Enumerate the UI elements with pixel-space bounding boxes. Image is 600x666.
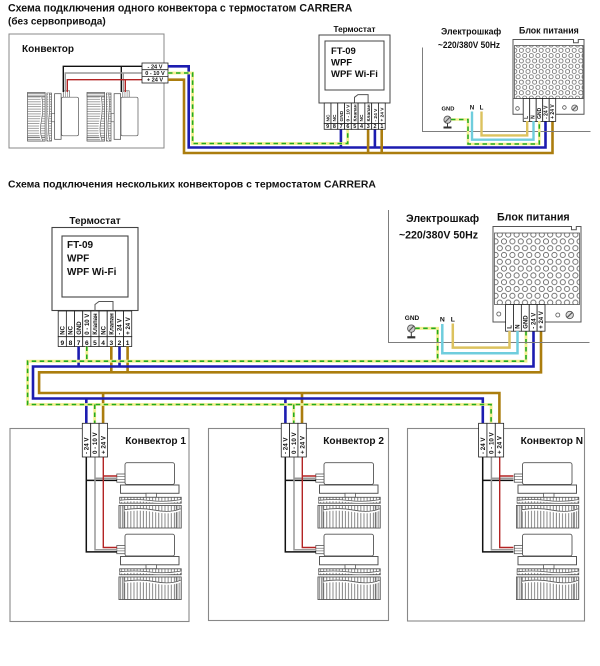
svg-text:FT-09: FT-09 bbox=[67, 240, 94, 251]
svg-text:1: 1 bbox=[380, 124, 383, 130]
svg-text:N: N bbox=[440, 317, 445, 324]
svg-text:+ 24 V: + 24 V bbox=[539, 311, 545, 329]
svg-text:GND: GND bbox=[523, 315, 529, 329]
svg-text:4: 4 bbox=[360, 124, 363, 130]
svg-text:Конвектор 2: Конвектор 2 bbox=[323, 436, 384, 447]
svg-text:5: 5 bbox=[93, 340, 97, 347]
svg-text:Конвектор N: Конвектор N bbox=[521, 436, 583, 447]
svg-text:- 24 V: - 24 V bbox=[544, 105, 550, 119]
svg-text:+ 24 V: + 24 V bbox=[380, 107, 386, 122]
svg-text:Блок питания: Блок питания bbox=[519, 26, 579, 36]
svg-text:7: 7 bbox=[340, 124, 343, 130]
svg-text:Конвектор: Конвектор bbox=[22, 44, 74, 55]
svg-text:6: 6 bbox=[346, 124, 349, 130]
svg-text:Блок питания: Блок питания bbox=[497, 212, 570, 224]
svg-text:Клапан: Клапан bbox=[366, 104, 372, 121]
svg-text:Схема подключения одного конве: Схема подключения одного конвектора с те… bbox=[8, 3, 353, 15]
svg-text:8: 8 bbox=[333, 124, 336, 130]
svg-text:GND: GND bbox=[339, 110, 345, 121]
svg-text:Клапан: Клапан bbox=[93, 313, 99, 335]
svg-text:L: L bbox=[508, 325, 514, 329]
svg-text:FT-09: FT-09 bbox=[331, 46, 356, 57]
svg-text:6: 6 bbox=[85, 340, 89, 347]
svg-text:0 - 10 V: 0 - 10 V bbox=[488, 431, 495, 454]
svg-text:NC: NC bbox=[60, 325, 66, 334]
svg-text:1: 1 bbox=[126, 340, 130, 347]
svg-text:+ 24 V: + 24 V bbox=[299, 435, 306, 454]
svg-text:WPF Wi-Fi: WPF Wi-Fi bbox=[67, 267, 117, 278]
svg-text:0 - 10 V: 0 - 10 V bbox=[145, 71, 165, 77]
svg-text:L: L bbox=[524, 116, 530, 119]
svg-text:5: 5 bbox=[353, 124, 356, 130]
svg-text:+ 24 V: + 24 V bbox=[147, 78, 164, 84]
svg-text:~220/380V 50Hz: ~220/380V 50Hz bbox=[399, 230, 478, 242]
svg-text:(без сервопривода): (без сервопривода) bbox=[8, 16, 106, 28]
svg-text:9: 9 bbox=[326, 124, 329, 130]
svg-text:Электрошкаф: Электрошкаф bbox=[406, 213, 479, 225]
svg-text:8: 8 bbox=[69, 340, 73, 347]
svg-text:- 24 V: - 24 V bbox=[148, 64, 163, 70]
svg-text:Термостат: Термостат bbox=[333, 25, 375, 34]
svg-text:N: N bbox=[516, 324, 522, 328]
svg-text:GND: GND bbox=[77, 321, 83, 335]
svg-text:GND: GND bbox=[537, 107, 543, 119]
svg-text:NC: NC bbox=[359, 114, 365, 121]
svg-text:NC: NC bbox=[69, 325, 75, 334]
svg-text:NC: NC bbox=[101, 325, 107, 334]
svg-text:Клапан: Клапан bbox=[109, 313, 115, 335]
svg-text:L: L bbox=[451, 317, 455, 324]
svg-text:WPF Wi-Fi: WPF Wi-Fi bbox=[331, 69, 378, 80]
svg-text:- 24 V: - 24 V bbox=[283, 437, 290, 454]
svg-text:3: 3 bbox=[367, 124, 370, 130]
svg-text:4: 4 bbox=[101, 340, 105, 347]
svg-text:GND: GND bbox=[442, 107, 455, 113]
svg-text:Конвектор 1: Конвектор 1 bbox=[125, 436, 186, 447]
svg-text:9: 9 bbox=[60, 340, 64, 347]
svg-text:WPF: WPF bbox=[67, 254, 89, 265]
svg-text:7: 7 bbox=[77, 340, 81, 347]
svg-text:N: N bbox=[531, 115, 537, 119]
svg-text:+ 24 V: + 24 V bbox=[497, 435, 504, 454]
svg-text:+ 24 V: + 24 V bbox=[126, 317, 132, 335]
svg-text:Термостат: Термостат bbox=[69, 216, 120, 227]
svg-text:GND: GND bbox=[405, 315, 420, 322]
svg-text:NC: NC bbox=[332, 114, 338, 121]
svg-text:Электрошкаф: Электрошкаф bbox=[441, 27, 501, 37]
svg-text:2: 2 bbox=[118, 340, 122, 347]
svg-text:0 - 10 V: 0 - 10 V bbox=[92, 431, 99, 454]
svg-text:L: L bbox=[480, 105, 484, 112]
svg-text:3: 3 bbox=[109, 340, 113, 347]
svg-text:- 24 V: - 24 V bbox=[84, 437, 91, 454]
svg-text:- 24 V: - 24 V bbox=[480, 437, 487, 454]
svg-text:0 - 10 V: 0 - 10 V bbox=[346, 104, 352, 122]
svg-text:0 - 10 V: 0 - 10 V bbox=[291, 431, 298, 454]
svg-text:- 24 V: - 24 V bbox=[118, 319, 124, 335]
svg-text:NC: NC bbox=[325, 114, 331, 121]
svg-text:WPF: WPF bbox=[331, 58, 352, 69]
svg-text:Клапан: Клапан bbox=[352, 104, 358, 121]
svg-text:+ 24 V: + 24 V bbox=[101, 435, 108, 454]
svg-text:~220/380V 50Hz: ~220/380V 50Hz bbox=[438, 40, 501, 50]
svg-text:- 24 V: - 24 V bbox=[531, 313, 537, 329]
svg-text:- 24 V: - 24 V bbox=[373, 108, 379, 122]
svg-text:+ 24 V: + 24 V bbox=[550, 104, 556, 119]
svg-text:N: N bbox=[470, 105, 475, 112]
svg-text:0 - 10 V: 0 - 10 V bbox=[85, 314, 91, 335]
svg-text:Схема подключения нескольких к: Схема подключения нескольких конвекторов… bbox=[8, 180, 376, 191]
svg-text:2: 2 bbox=[374, 124, 377, 130]
